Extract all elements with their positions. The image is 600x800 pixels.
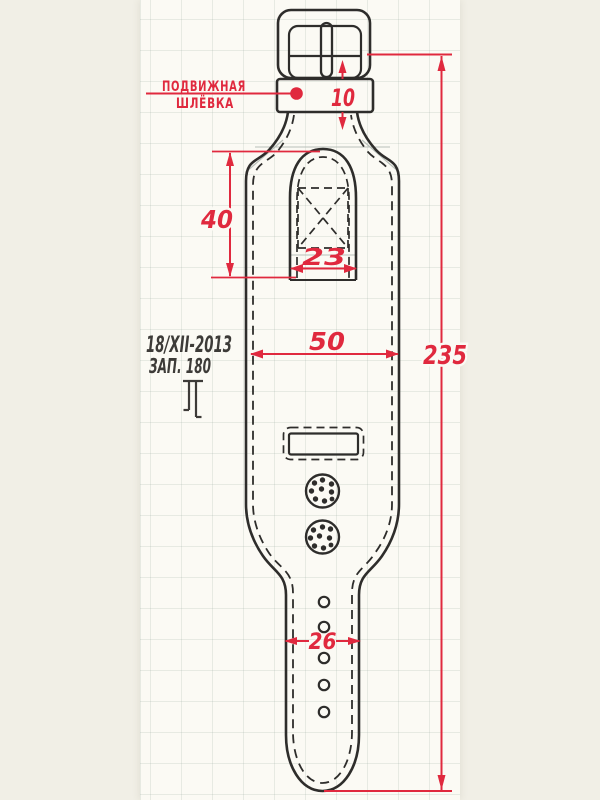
buckle-outer-frame: [278, 10, 370, 78]
dim-tab-width: 23: [290, 245, 357, 273]
dim-tab-height-value: 40: [200, 205, 233, 234]
leader-dot: [290, 87, 303, 100]
keeper-callout: ПОДВИЖНАЯ ШЛЁВКА: [146, 79, 303, 112]
maker-mark: [183, 381, 203, 417]
dim-keeper-height: 10: [331, 60, 355, 130]
dim-keeper-height-value: 10: [331, 84, 355, 112]
dim-tab-width-value: 23: [302, 245, 346, 271]
dim-end-width-value: 26: [309, 630, 337, 655]
buckle-inner-frame: [289, 26, 361, 78]
dim-cuff-width-value: 50: [309, 327, 345, 356]
vent-hole-bottom: [306, 521, 339, 554]
strap-slot: [284, 428, 364, 460]
buckle: [278, 10, 370, 78]
dim-total-length-value: 235: [423, 341, 467, 371]
strap-drawing-canvas: ПОДВИЖНАЯ ШЛЁВКА 10 40: [0, 0, 600, 800]
scanned-drawing: ПОДВИЖНАЯ ШЛЁВКА 10 40: [0, 0, 600, 800]
buckle-holes: [319, 597, 329, 717]
strap-ink-drawing: [246, 10, 399, 791]
vent-hole-top: [306, 475, 339, 508]
dimension-annotations: ПОДВИЖНАЯ ШЛЁВКА 10 40: [146, 55, 467, 792]
dim-cuff-width: 50: [250, 327, 399, 359]
order-note: ЗАП. 180: [148, 354, 211, 378]
keeper-label-line1: ПОДВИЖНАЯ: [162, 79, 246, 95]
dim-end-width: 26: [284, 630, 361, 655]
slot-cutout: [289, 434, 358, 455]
keeper-label-line2: ШЛЁВКА: [176, 95, 234, 112]
maker-notes: 18/XII-2013 ЗАП. 180: [146, 333, 232, 417]
tab-lacing-marks: [298, 188, 348, 248]
buckle-prong: [321, 23, 332, 77]
